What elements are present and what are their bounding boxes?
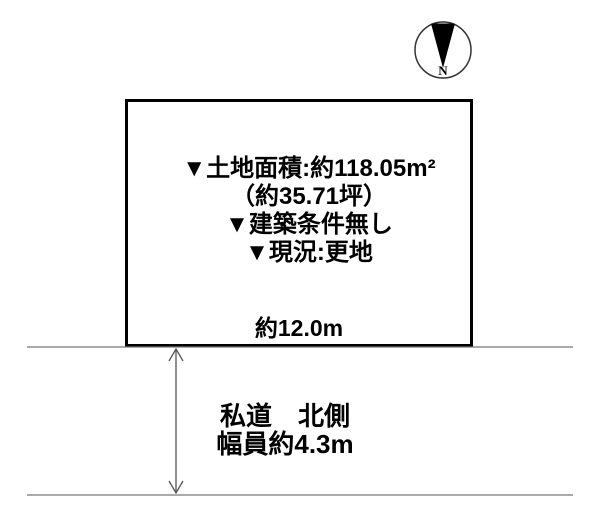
road-name-label: 私道 北側 — [216, 402, 353, 430]
land-plot-outline: ▼土地面積:約118.05m² （約35.71坪） ▼建築条件無し ▼現況:更地… — [125, 99, 473, 347]
road-width-arrowhead-bottom — [169, 481, 183, 493]
frontage-width-label: 約12.0m — [128, 314, 470, 342]
road-width-label: 幅員約4.3m — [216, 430, 353, 458]
plot-info-block: ▼土地面積:約118.05m² （約35.71坪） ▼建築条件無し ▼現況:更地 — [138, 155, 480, 267]
compass-north-label: N — [438, 64, 447, 77]
plot-condition-line: ▼建築条件無し — [138, 211, 480, 239]
plot-area-line: ▼土地面積:約118.05m² — [138, 155, 480, 183]
site-plan-diagram: N ▼土地面積:約118.05m² （約35.71坪） ▼建築条件無し ▼現況:… — [0, 0, 600, 520]
road-label: 私道 北側 幅員約4.3m — [216, 402, 353, 458]
plot-status-line: ▼現況:更地 — [138, 239, 480, 267]
road-width-arrowhead-top — [169, 349, 183, 361]
road-width-arrow — [169, 349, 183, 493]
compass-north-indicator: N — [413, 20, 473, 80]
plot-tsubo-line: （約35.71坪） — [138, 183, 480, 211]
